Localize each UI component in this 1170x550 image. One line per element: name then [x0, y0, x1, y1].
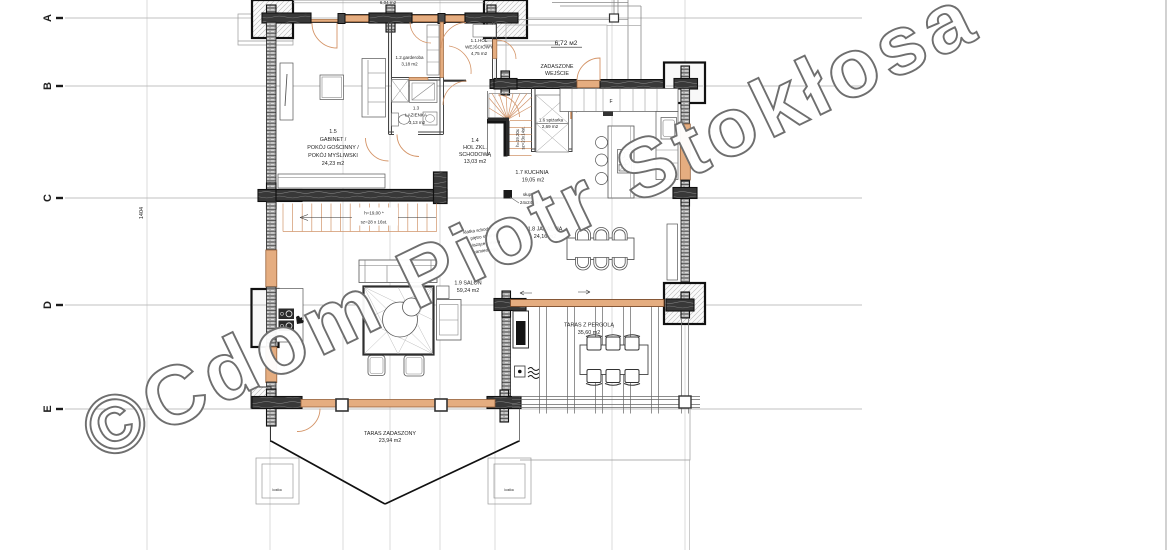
svg-text:h=19,20x: h=19,20x: [515, 128, 520, 147]
svg-text:HOL ZKL.: HOL ZKL.: [463, 145, 487, 151]
svg-text:13,03 m2: 13,03 m2: [464, 159, 486, 165]
svg-text:TARAS Z PERGOLĄ: TARAS Z PERGOLĄ: [564, 323, 614, 329]
svg-text:F: F: [609, 99, 612, 105]
svg-text:1404: 1404: [139, 207, 145, 219]
svg-text:1.6 spiżarka: 1.6 spiżarka: [539, 118, 564, 123]
svg-text:1.1.HOL: 1.1.HOL: [471, 38, 488, 43]
svg-text:h=19,00 *: h=19,00 *: [364, 211, 384, 216]
svg-text:6,72 м2: 6,72 м2: [555, 40, 578, 47]
svg-text:ZADASZONE: ZADASZONE: [541, 64, 574, 70]
svg-text:B: B: [42, 82, 54, 90]
svg-text:WEJŚCIE: WEJŚCIE: [545, 69, 569, 77]
svg-text:1.4: 1.4: [471, 138, 479, 144]
svg-text:E: E: [42, 405, 54, 412]
svg-text:1.2.garderoba: 1.2.garderoba: [395, 55, 424, 60]
svg-text:1.5: 1.5: [329, 129, 337, 135]
svg-text:23,94 m2: 23,94 m2: [379, 438, 401, 444]
svg-text:WEJŚCIOWY: WEJŚCIOWY: [465, 43, 493, 50]
svg-text:6,04 m2: 6,04 m2: [380, 0, 397, 5]
svg-text:1.3: 1.3: [413, 106, 420, 111]
svg-text:35,60 m2: 35,60 m2: [578, 330, 600, 336]
svg-text:sz=28 x 16st.: sz=28 x 16st.: [361, 220, 388, 225]
svg-text:SCHODOWĄ: SCHODOWĄ: [459, 152, 492, 158]
svg-text:24,23 m2: 24,23 m2: [322, 161, 344, 167]
svg-text:ŁAZIENKA: ŁAZIENKA: [405, 113, 427, 118]
svg-text:D: D: [42, 301, 54, 309]
svg-text:3,18 m2: 3,18 m2: [401, 62, 418, 67]
svg-text:kostka: kostka: [504, 488, 513, 492]
svg-text:3,13 m2: 3,13 m2: [409, 120, 426, 125]
svg-text:4,75 m2: 4,75 m2: [471, 51, 488, 56]
svg-text:GABINET /: GABINET /: [320, 137, 347, 143]
svg-text:POKÓJ GOŚCINNY /: POKÓJ GOŚCINNY /: [307, 143, 359, 151]
svg-text:kostka: kostka: [272, 488, 281, 492]
svg-text:A: A: [42, 14, 54, 22]
svg-text:TARAS ZADASZONY: TARAS ZADASZONY: [364, 431, 416, 437]
svg-text:sz=23x14st.: sz=23x14st.: [521, 126, 526, 149]
svg-text:POKÓJ MYŚLIWSKI: POKÓJ MYŚLIWSKI: [308, 151, 358, 159]
svg-text:2,69 m2: 2,69 m2: [542, 124, 559, 129]
svg-text:C: C: [42, 194, 54, 202]
